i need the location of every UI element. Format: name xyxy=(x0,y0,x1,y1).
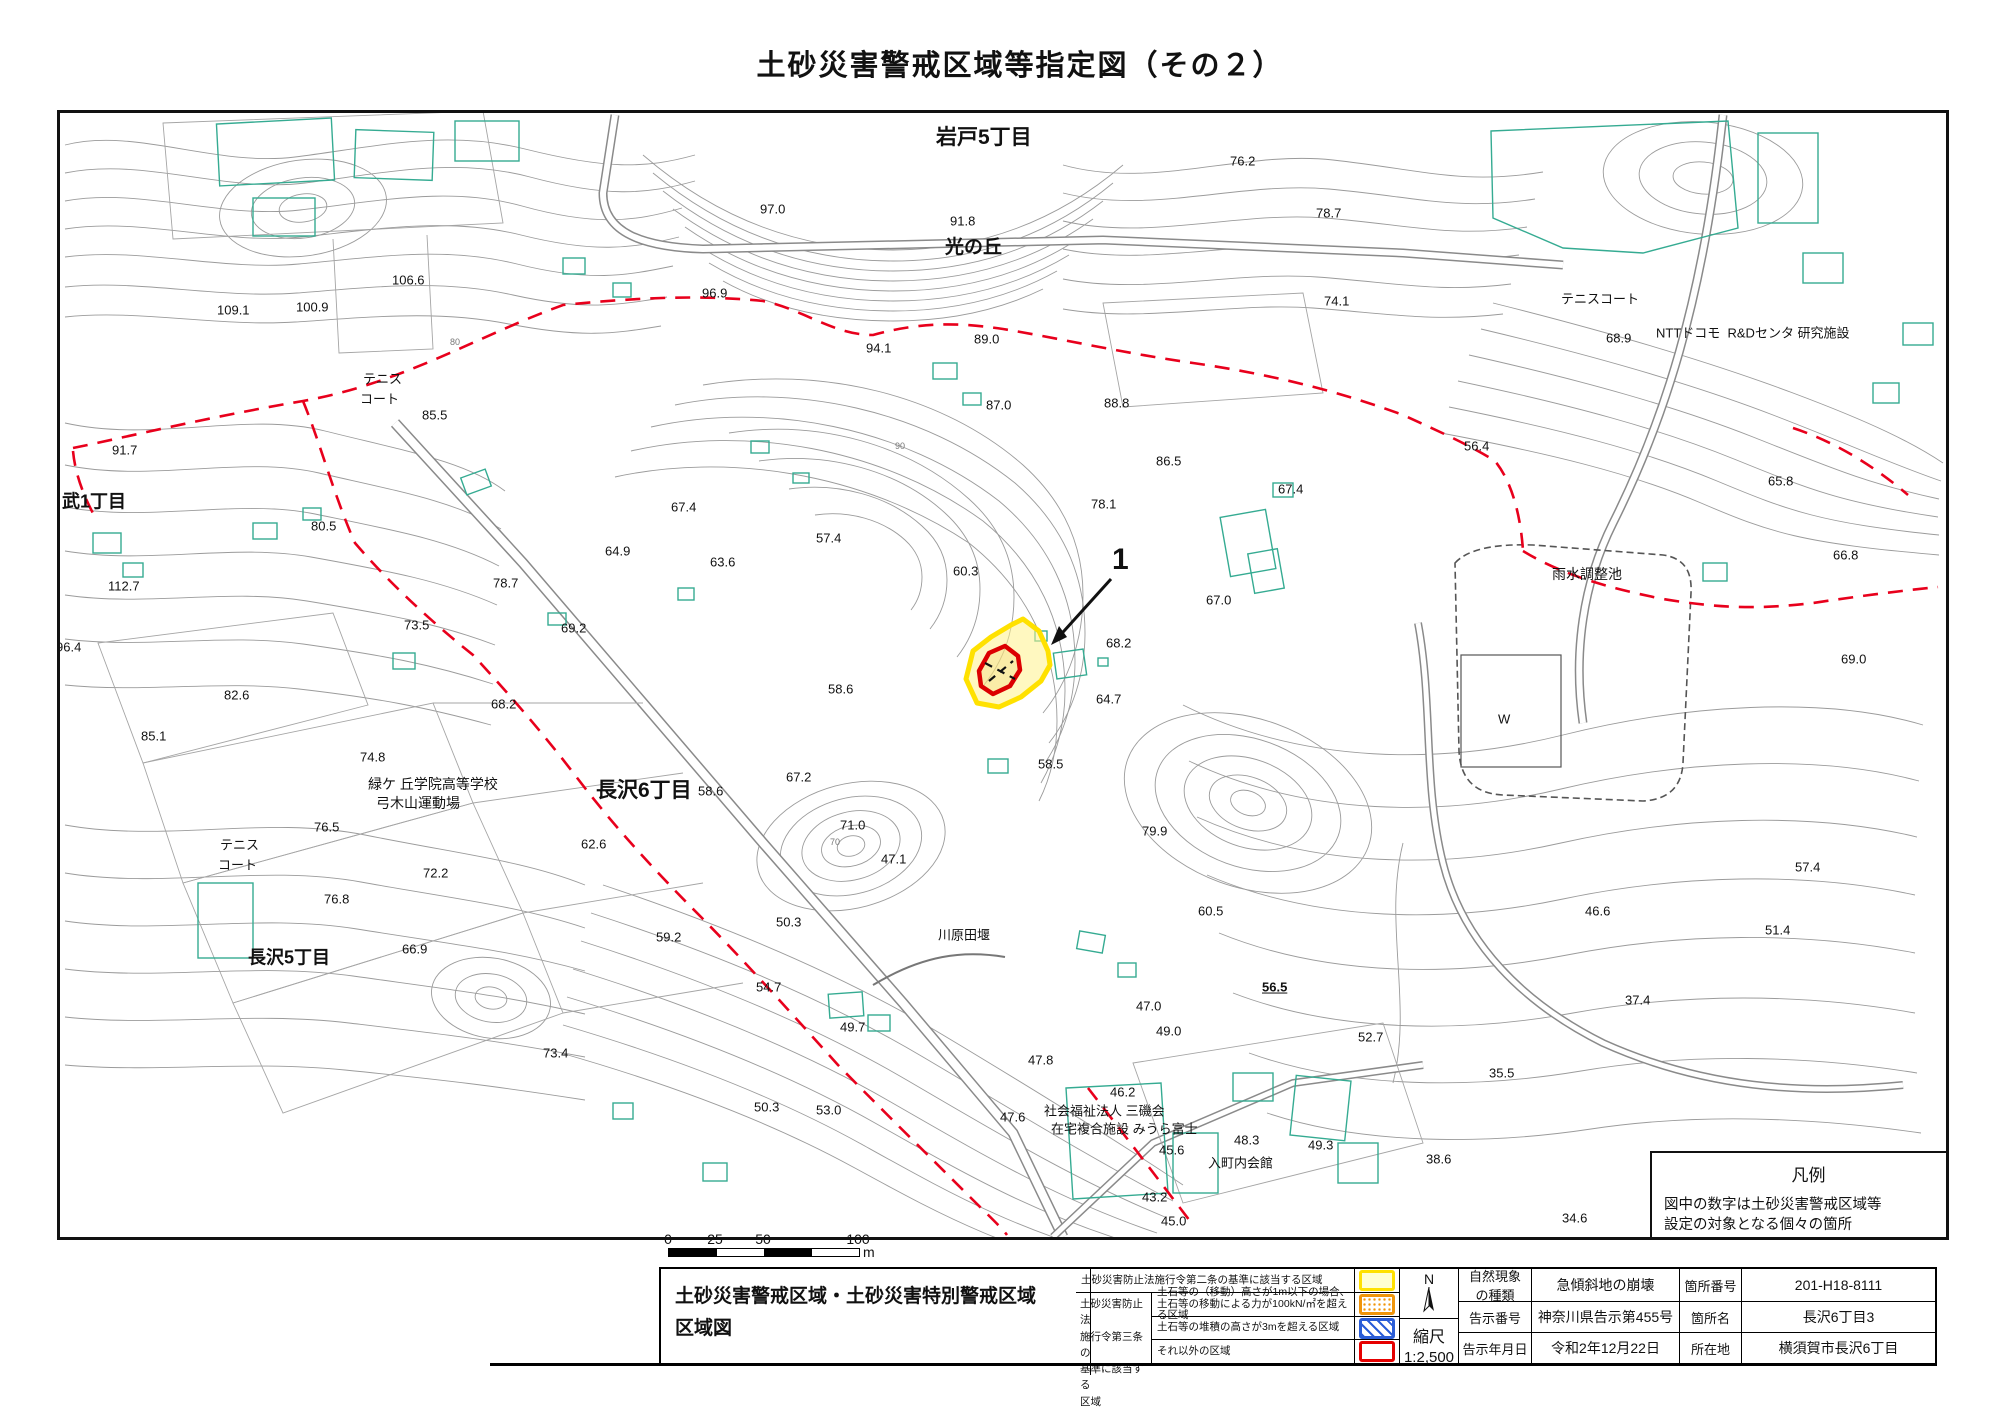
info-label-site-name: 箇所名 xyxy=(1680,1302,1742,1333)
scale-cell: 縮尺 1:2,500 xyxy=(1400,1319,1459,1363)
map-label: 弓木山運動場 xyxy=(376,795,460,811)
map-label: 78.7 xyxy=(1316,207,1341,222)
scale-label: 縮尺 xyxy=(1400,1323,1458,1347)
sheet-bottom-rule xyxy=(490,1363,1937,1366)
map-label: 50.3 xyxy=(754,1101,779,1116)
legend-note-line2: 設定の対象となる個々の箇所 xyxy=(1664,1217,1852,1233)
map-label: 50.3 xyxy=(776,916,801,931)
map-label: 65.8 xyxy=(1768,475,1793,490)
map-label: コート xyxy=(360,393,399,408)
map-label: 46.2 xyxy=(1110,1086,1135,1101)
map-label: 69.0 xyxy=(1841,653,1866,668)
map-label: 68.2 xyxy=(491,698,516,713)
scale-bar: 0 25 50 100 m xyxy=(655,1231,885,1265)
legend-law3-group-label: 土砂災害防止法 施行令第三条の 基準に該当する 区域 xyxy=(1076,1293,1152,1363)
map-label: 90 xyxy=(895,441,905,451)
map-label: 85.1 xyxy=(141,730,166,745)
map-label: 45.6 xyxy=(1159,1144,1184,1159)
legend-swatch-yellow xyxy=(1359,1270,1395,1291)
map-label: 60.5 xyxy=(1198,905,1223,920)
map-label: 78.7 xyxy=(493,577,518,592)
map-label: 53.0 xyxy=(816,1104,841,1119)
legend-swatch-blue xyxy=(1359,1318,1395,1339)
info-value-notice-date: 令和2年12月22日 xyxy=(1532,1333,1680,1363)
info-label-notice-date: 告示年月日 xyxy=(1459,1333,1532,1363)
map-label: 109.1 xyxy=(217,304,250,319)
parcel-lines xyxy=(98,113,1423,1203)
legend-row2-desc: 土石等の（移動）高さが1m以下の場合、土石等の移動による力が100kN/㎡を超え… xyxy=(1152,1293,1355,1317)
area-label-iwato5: 岩戸5丁目 xyxy=(936,126,1032,150)
map-label: 47.8 xyxy=(1028,1054,1053,1069)
map-label: 社会福祉法人 三磯会 xyxy=(1044,1105,1165,1120)
map-label: 58.6 xyxy=(698,785,723,800)
map-label: NTTドコモ R&Dセンタ 研究施設 xyxy=(1656,327,1850,342)
map-label: 54.7 xyxy=(756,981,781,996)
legend-swatch-cell xyxy=(1355,1269,1400,1293)
scale-bar-graphic xyxy=(668,1248,860,1257)
map-label: 47.1 xyxy=(881,853,906,868)
legend-title: 凡例 xyxy=(1652,1161,1949,1186)
info-label-location: 所在地 xyxy=(1680,1333,1742,1363)
map-label: 川原田堰 xyxy=(938,929,990,944)
map-canvas xyxy=(60,113,1946,1237)
hazard-zone xyxy=(966,579,1111,707)
map-label: 57.4 xyxy=(816,532,841,547)
map-label: 49.0 xyxy=(1156,1025,1181,1040)
map-label: 37.4 xyxy=(1625,994,1650,1009)
area-label-takeshi1: 武1丁目 xyxy=(62,492,126,513)
map-label: 96.4 xyxy=(57,641,81,656)
map-label: 68.2 xyxy=(1106,637,1131,652)
map-label: 91.7 xyxy=(112,444,137,459)
scale-tick-0: 0 xyxy=(664,1231,672,1247)
map-label: 48.3 xyxy=(1234,1134,1259,1149)
sheet-title-cell: 土砂災害警戒区域・土砂災害特別警戒区域 区域図 xyxy=(661,1269,1091,1375)
info-value-location: 横須賀市長沢6丁目 xyxy=(1742,1333,1935,1363)
scale-tick-25: 25 xyxy=(707,1231,723,1247)
map-label: 80.5 xyxy=(311,520,336,535)
map-label: テニス xyxy=(220,839,259,854)
map-label: 63.6 xyxy=(710,556,735,571)
map-label: 88.8 xyxy=(1104,397,1129,412)
info-label-phenomenon: 自然現象 の種類 xyxy=(1459,1269,1532,1302)
compass-cell: N xyxy=(1400,1269,1459,1319)
info-label-notice-number: 告示番号 xyxy=(1459,1302,1532,1333)
map-label: 72.2 xyxy=(423,867,448,882)
map-label: 51.4 xyxy=(1765,924,1790,939)
map-label: 96.9 xyxy=(702,287,727,302)
sheet-title-line2: 区域図 xyxy=(675,1318,732,1339)
map-label: 74.8 xyxy=(360,751,385,766)
legend-note-line1: 図中の数字は土砂災害警戒区域等 xyxy=(1664,1197,1882,1213)
map-label: 45.0 xyxy=(1161,1215,1186,1230)
map-label: 94.1 xyxy=(866,342,891,357)
map-label: 46.6 xyxy=(1585,905,1610,920)
map-label: 74.1 xyxy=(1324,295,1349,310)
map-label: W xyxy=(1498,713,1510,728)
map-label: 緑ケ 丘学院高等学校 xyxy=(368,776,498,792)
map-label: 76.8 xyxy=(324,893,349,908)
area-label-nagasawa5: 長沢5丁目 xyxy=(248,948,330,969)
map-label: 49.3 xyxy=(1308,1139,1333,1154)
info-value-site-name: 長沢6丁目3 xyxy=(1742,1302,1935,1333)
map-label: 69.2 xyxy=(561,622,586,637)
map-label: 38.6 xyxy=(1426,1153,1451,1168)
zone-number-marker: 1 xyxy=(1112,543,1129,578)
map-label: 80 xyxy=(450,337,460,347)
map-label: 在宅複合施設 みうら富士 xyxy=(1051,1123,1198,1138)
map-label: 47.6 xyxy=(1000,1111,1025,1126)
north-arrow-icon xyxy=(1420,1287,1438,1317)
map-label: 56.4 xyxy=(1464,440,1489,455)
area-label-hikarinooka: 光の丘 xyxy=(945,237,1002,259)
map-label: 112.7 xyxy=(108,580,140,595)
page-title: 土砂災害警戒区域等指定図（その２） xyxy=(756,42,1283,84)
map-label: 100.9 xyxy=(296,301,329,316)
map-label: コート xyxy=(218,859,257,874)
map-label: 60.3 xyxy=(953,565,978,580)
map-label: 91.8 xyxy=(950,215,975,230)
info-value-notice-number: 神奈川県告示第455号 xyxy=(1532,1302,1680,1333)
map-label: テニスコート xyxy=(1561,293,1639,308)
legend-swatch-orange xyxy=(1359,1294,1395,1315)
map-label: 71.0 xyxy=(840,819,865,834)
map-label: 雨水調整池 xyxy=(1552,566,1622,582)
map-label: 34.6 xyxy=(1562,1212,1587,1227)
map-label: 58.6 xyxy=(828,683,853,698)
info-label-site-number: 箇所番号 xyxy=(1680,1269,1742,1302)
map-label: 85.5 xyxy=(422,409,447,424)
map-label: 97.0 xyxy=(760,203,785,218)
map-frame: 岩戸5丁目光の丘武1丁目長沢6丁目長沢5丁目テニスコートテニスコートテニスコート… xyxy=(57,110,1949,1240)
sheet-title-line1: 土砂災害警戒区域・土砂災害特別警戒区域 xyxy=(675,1286,1036,1307)
map-label: 58.5 xyxy=(1038,758,1063,773)
map-label: 79.9 xyxy=(1142,825,1167,840)
map-label: 35.5 xyxy=(1489,1067,1514,1082)
map-label: 67.0 xyxy=(1206,594,1231,609)
map-label: 67.4 xyxy=(1278,483,1303,498)
map-label: 67.4 xyxy=(671,501,696,516)
info-value-site-number: 201-H18-8111 xyxy=(1742,1269,1935,1302)
map-label: 70 xyxy=(830,837,840,847)
scale-unit: m xyxy=(863,1244,875,1260)
map-label: 56.5 xyxy=(1262,981,1287,996)
legend-swatch-red xyxy=(1359,1341,1395,1362)
map-label: 73.4 xyxy=(543,1047,568,1062)
map-label: 66.9 xyxy=(402,943,427,958)
pond-outline xyxy=(1455,545,1691,801)
map-label: 入町内会館 xyxy=(1208,1157,1273,1172)
sheet-info-table: 土砂災害警戒区域・土砂災害特別警戒区域 区域図 土砂災害防止法施行令第二条の基準… xyxy=(659,1267,1937,1365)
legend-box: 凡例 図中の数字は土砂災害警戒区域等 設定の対象となる個々の箇所 字境界 市区町… xyxy=(1650,1151,1949,1240)
map-label: 86.5 xyxy=(1156,455,1181,470)
map-label: 76.2 xyxy=(1230,155,1255,170)
map-label: 68.9 xyxy=(1606,332,1631,347)
map-label: 66.8 xyxy=(1833,549,1858,564)
area-label-nagasawa6: 長沢6丁目 xyxy=(596,779,692,803)
map-label: 49.7 xyxy=(840,1021,865,1036)
map-label: 64.7 xyxy=(1096,693,1121,708)
map-label: 82.6 xyxy=(224,689,249,704)
map-label: 73.5 xyxy=(404,619,429,634)
map-label: 57.4 xyxy=(1795,861,1820,876)
map-label: 59.2 xyxy=(656,931,681,946)
map-label: 87.0 xyxy=(986,399,1011,414)
map-label: 43.2 xyxy=(1142,1191,1167,1206)
map-label: 64.9 xyxy=(605,545,630,560)
map-label: 89.0 xyxy=(974,333,999,348)
legend-row4-desc: それ以外の区域 xyxy=(1152,1340,1355,1363)
scale-tick-50: 50 xyxy=(755,1231,771,1247)
info-value-phenomenon: 急傾斜地の崩壊 xyxy=(1532,1269,1680,1302)
map-label: 67.2 xyxy=(786,771,811,786)
compass-n-label: N xyxy=(1400,1271,1458,1287)
hazard-map-sheet: { "title": "土砂災害警戒区域等指定図（その２）", "colors"… xyxy=(0,0,2000,1414)
legend-row3-desc: 土石等の堆積の高さが3mを超える区域 xyxy=(1152,1317,1355,1340)
map-label: 62.6 xyxy=(581,838,606,853)
map-label: 52.7 xyxy=(1358,1031,1383,1046)
map-label: テニス xyxy=(363,373,402,388)
map-label: 47.0 xyxy=(1136,1000,1161,1015)
map-label: 76.5 xyxy=(314,821,339,836)
map-label: 106.6 xyxy=(392,274,425,289)
map-label: 78.1 xyxy=(1091,498,1116,513)
